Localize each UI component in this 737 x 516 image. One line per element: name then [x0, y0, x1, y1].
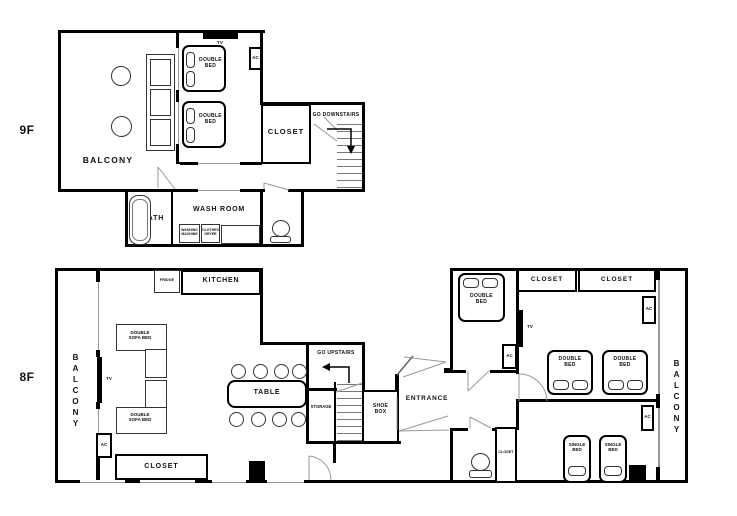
door-gap [466, 370, 490, 373]
bed-label: DOUBLE BED [197, 114, 224, 126]
pillow [627, 380, 643, 390]
pillow [186, 52, 195, 68]
floor-plan: 9F BALCONY TV AC DOUBLE BED DOUBLE BED C… [0, 0, 737, 516]
room-label-closet: CLOSET [118, 463, 205, 471]
room-label-closet: CLOSET [580, 276, 654, 284]
ac-label: AC [642, 306, 656, 311]
pillow [186, 71, 195, 87]
ac-label: AC [641, 414, 654, 419]
room-label-closet: CLOSET [263, 128, 309, 137]
bed-label: DOUBLE BED [607, 357, 643, 369]
balcony-stool [111, 66, 131, 86]
pillow [553, 380, 569, 390]
pillar [249, 461, 265, 482]
sofa-bed-label: DOUBLE SOFA BED [127, 330, 153, 341]
wall [260, 191, 263, 244]
wall [516, 400, 519, 430]
window-line [658, 278, 660, 470]
chair [253, 364, 268, 379]
toilet-base [469, 470, 492, 478]
window-line [80, 482, 125, 483]
storage-label: STORAGE [306, 405, 336, 410]
entrance-label: ENTRANCE [402, 395, 452, 403]
bed-label: DOUBLE BED [552, 357, 588, 369]
pillow [604, 466, 622, 476]
floor-label-9f: 9F [14, 123, 40, 137]
ac-label: AC [96, 442, 112, 447]
wall [333, 441, 336, 463]
balcony-stool [111, 116, 132, 137]
room-label-closet: CLOSET [495, 450, 517, 454]
bed-label: SINGLE BED [601, 442, 625, 453]
sliding-door-line [198, 163, 240, 164]
pillow [463, 278, 479, 288]
wall [362, 342, 365, 392]
wall [444, 368, 453, 373]
window-line [178, 48, 179, 90]
room-label-balcony-right: BALCONY [663, 340, 681, 455]
window-line [212, 482, 246, 483]
chair [272, 412, 287, 427]
wall [301, 189, 304, 247]
chair [231, 364, 246, 379]
wall [260, 342, 365, 345]
bed-label: SINGLE BED [565, 442, 589, 453]
staircase-down [337, 124, 362, 190]
pillow [608, 380, 624, 390]
chair [251, 412, 266, 427]
shelf-compartment [150, 59, 171, 86]
tv [203, 32, 238, 39]
toilet-bowl [471, 453, 490, 471]
room-label-balcony-left: BALCONY [62, 336, 80, 446]
wall [125, 189, 128, 247]
closet-room [495, 427, 517, 483]
wall [96, 268, 100, 282]
door-gap [468, 428, 492, 431]
sofa-bed [145, 349, 167, 378]
wall [306, 388, 337, 391]
chair [291, 412, 306, 427]
shelf-compartment [150, 89, 171, 116]
wall [656, 268, 660, 280]
sofa-bed-label: DOUBLE SOFA BED [127, 412, 153, 423]
floor-label-8f: 8F [14, 370, 40, 384]
pillow [186, 127, 195, 143]
pillar [629, 465, 646, 482]
ac-label: AC [249, 55, 262, 60]
window-line [178, 102, 179, 144]
fridge-label: FRIDGE [155, 278, 179, 282]
wall [96, 402, 100, 409]
bed-label: DOUBLE BED [466, 294, 497, 306]
pillow [482, 278, 498, 288]
window-line [140, 482, 195, 483]
clothes-dryer-label: CLOTHES DRYER [202, 228, 219, 236]
wall [450, 268, 453, 373]
wall [656, 394, 660, 408]
tv-label: TV [524, 324, 536, 329]
go-downstairs-label: GO DOWNSTAIRS [306, 113, 366, 119]
door-gap [175, 164, 180, 189]
wall [125, 244, 304, 247]
tv [518, 310, 523, 347]
chair [274, 364, 289, 379]
sofa-bed [145, 380, 167, 409]
room-label-washroom: WASH ROOM [188, 206, 250, 214]
counter [221, 225, 260, 244]
go-upstairs-arrow [330, 367, 349, 383]
bathtub-inner [132, 199, 148, 241]
table-label: TABLE [230, 389, 304, 397]
window-line [267, 482, 304, 483]
pillow [572, 380, 588, 390]
wall [58, 30, 61, 192]
room-label-closet: CLOSET [519, 276, 575, 284]
room-label-balcony: BALCONY [78, 155, 138, 165]
wall [171, 191, 173, 244]
tv [97, 357, 102, 403]
bed-label: DOUBLE BED [197, 58, 224, 70]
sliding-door-line [198, 190, 240, 191]
wall [450, 428, 453, 483]
wall [656, 467, 660, 483]
shoe-box-room [362, 390, 399, 443]
go-upstairs-label: GO UPSTAIRS [308, 351, 364, 357]
wall [55, 268, 58, 483]
pillow [186, 108, 195, 124]
staircase-up [337, 384, 362, 442]
toilet-bowl [272, 220, 290, 237]
shelf-compartment [150, 119, 171, 146]
ac-label: AC [502, 353, 517, 358]
toilet-base [270, 236, 291, 243]
tv-label: TV [103, 376, 115, 381]
chair [229, 412, 244, 427]
wall [516, 399, 660, 402]
wall [334, 382, 336, 444]
wall [685, 268, 688, 483]
wall [96, 350, 100, 357]
room-label-kitchen: KITCHEN [183, 277, 259, 285]
washing-machine-label: WASHING MACHINE [180, 228, 199, 236]
shoe-box-label: SHOE BOX [368, 404, 393, 416]
pillow [568, 466, 586, 476]
chair [292, 364, 307, 379]
